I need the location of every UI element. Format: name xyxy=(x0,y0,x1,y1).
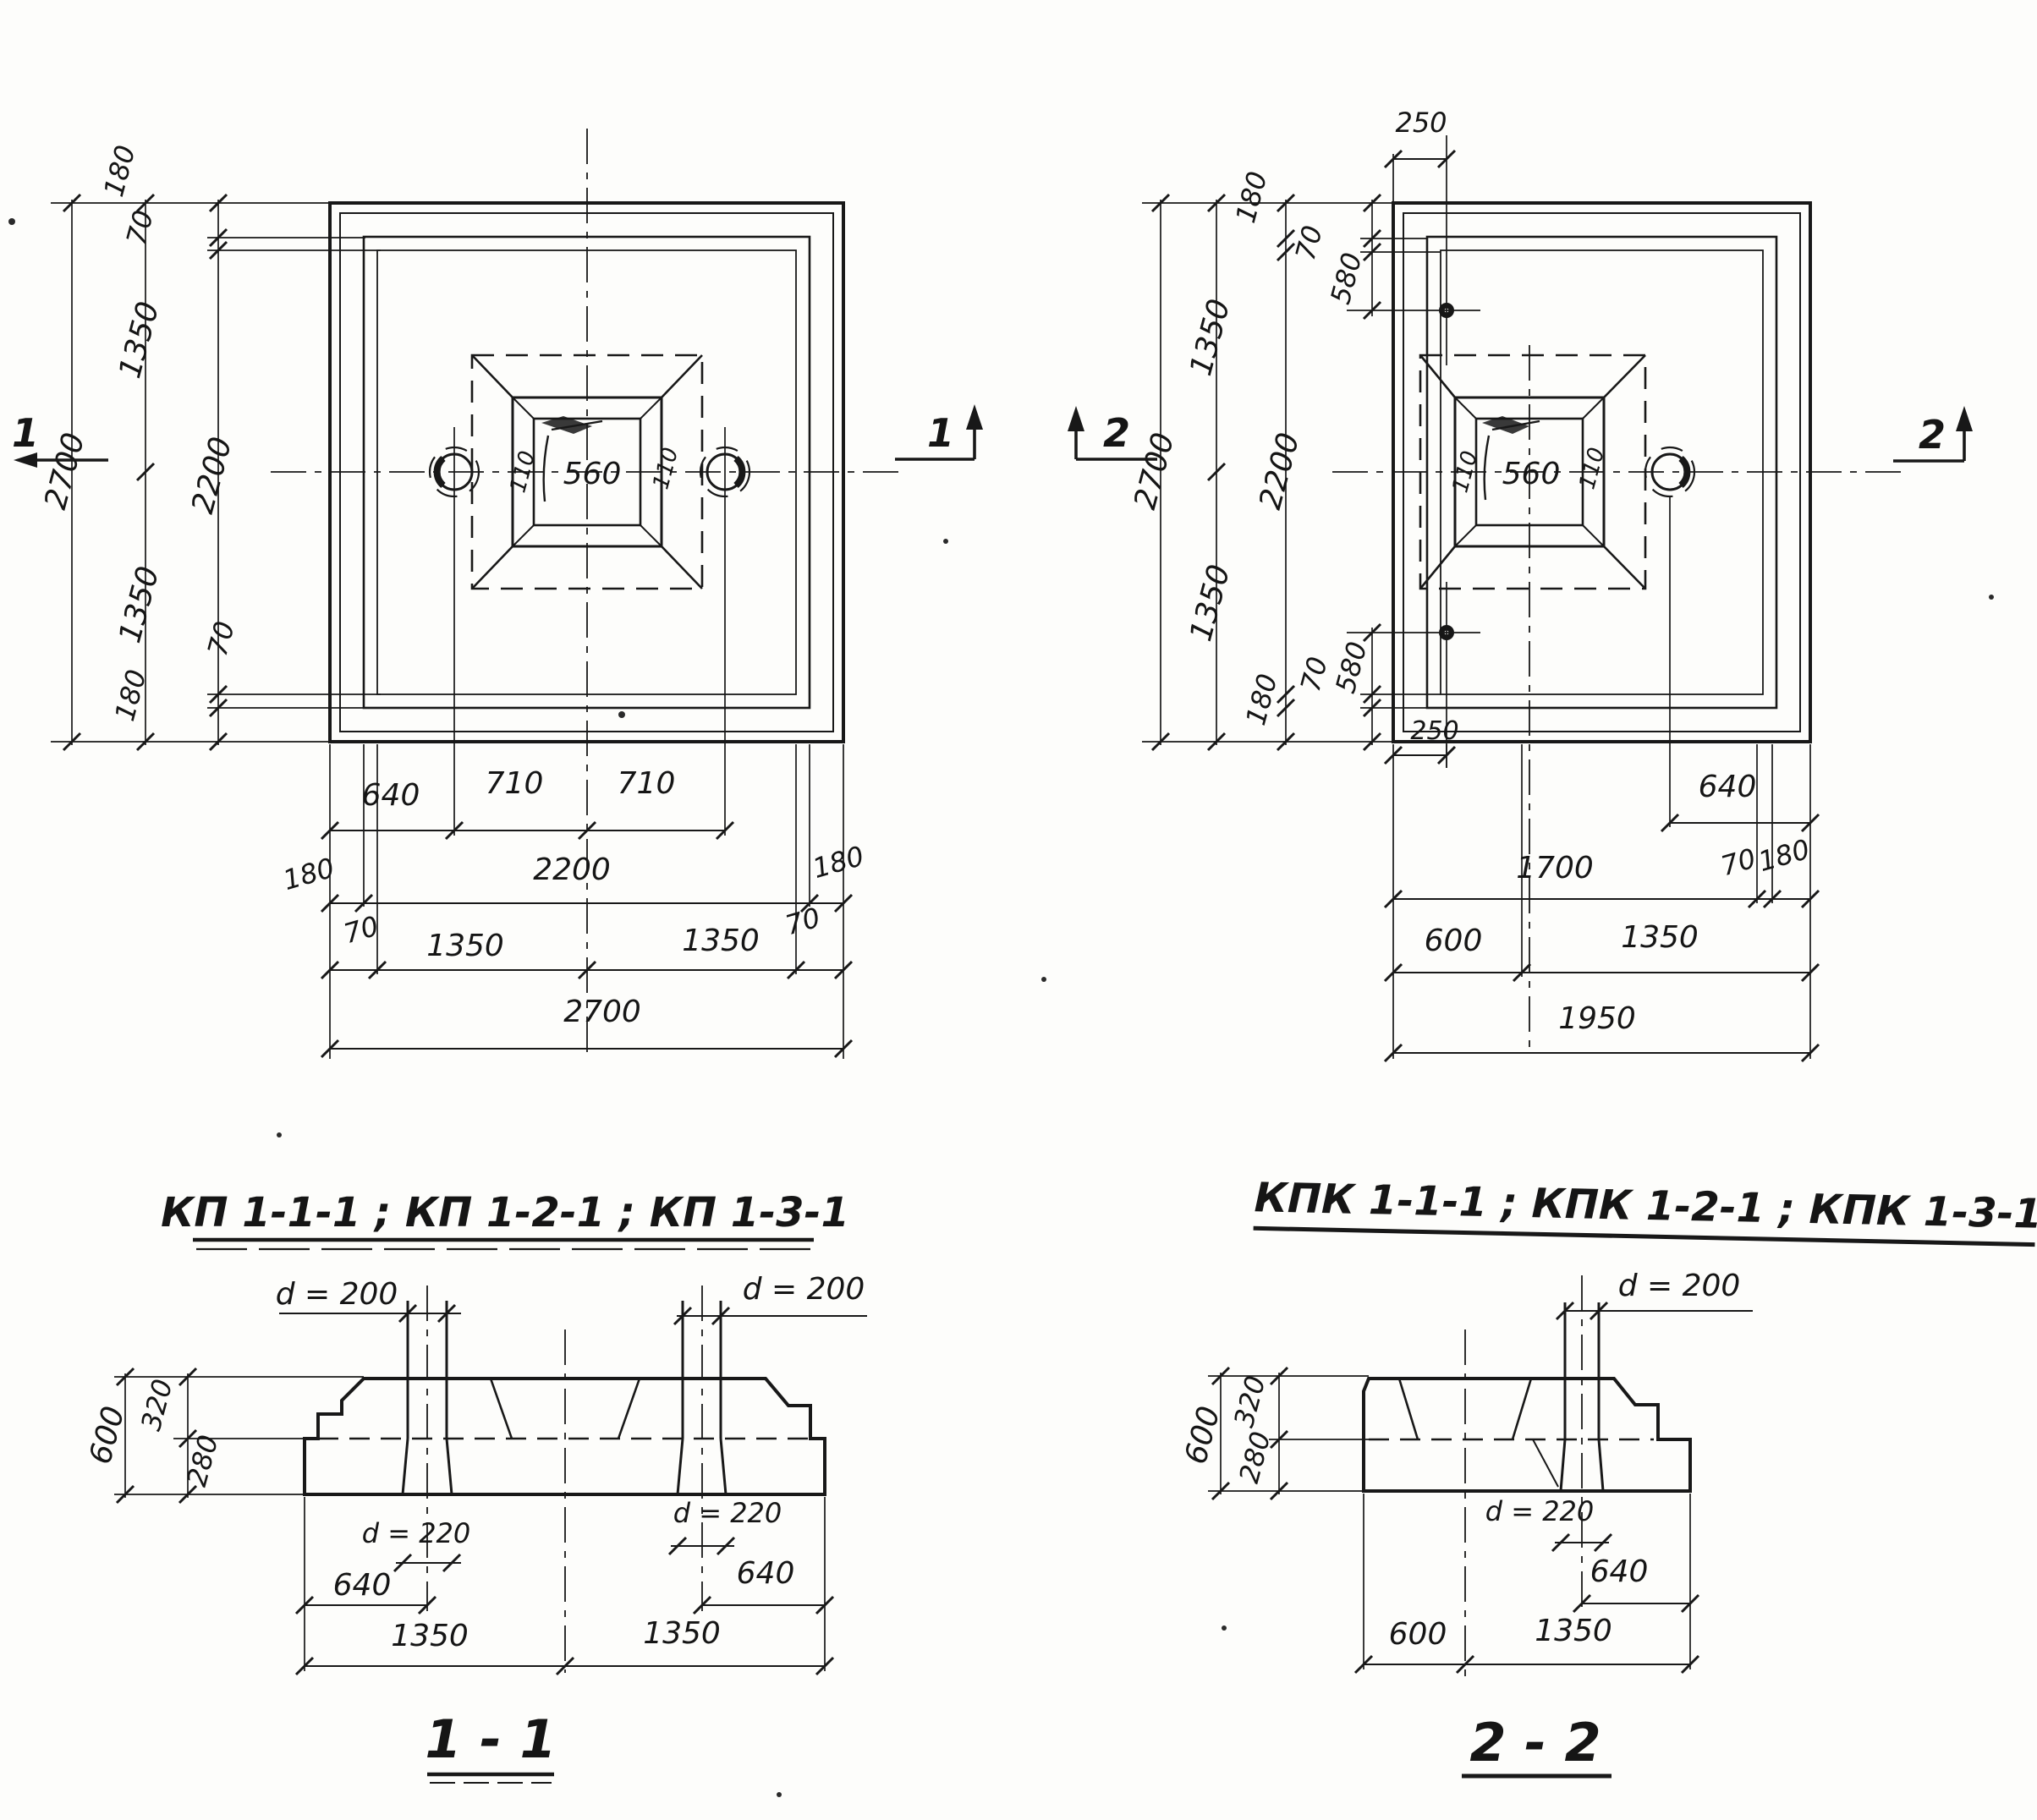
section-1-title: 1 - 1 xyxy=(425,1708,556,1770)
dim-710-left: 710 xyxy=(486,766,544,801)
foundation-drawing: 2700 1350 1350 2200 180 70 70 180 110 56… xyxy=(0,0,2037,1820)
dim-70-top: 70 xyxy=(1289,222,1329,264)
dim-250-top: 250 xyxy=(1395,107,1447,139)
dim-70-bottom: 70 xyxy=(1294,654,1334,695)
dim-70-right: 70 xyxy=(782,902,824,942)
section-1-dimension-lines xyxy=(279,1313,867,1666)
pocket-110-left: 110 xyxy=(505,448,541,496)
svg-text:1: 1 xyxy=(927,410,954,456)
plan-right-ticks xyxy=(1152,151,1819,1061)
pocket-560: 560 xyxy=(1502,457,1561,491)
section-2-dimension-lines xyxy=(1364,1311,1753,1664)
dim-edge-top: 180 xyxy=(97,142,142,200)
svg-text:1: 1 xyxy=(12,410,39,456)
section-2-extensions xyxy=(1208,1373,1690,1669)
dim-640-right: 640 xyxy=(737,1556,795,1591)
plan-right-extensions xyxy=(1142,135,1810,1059)
svg-text:2: 2 xyxy=(1103,410,1130,456)
section-2-2-view: d = 200 600 320 280 d = 220 640 600 1350… xyxy=(1178,1269,1753,1776)
dim-600: 600 xyxy=(1425,924,1483,958)
dim-1350-left: 1350 xyxy=(426,929,504,963)
dim-1350-left: 1350 xyxy=(391,1619,469,1653)
blueprint-canvas: 2700 1350 1350 2200 180 70 70 180 110 56… xyxy=(0,0,2037,1820)
pocket-560: 560 xyxy=(563,457,622,491)
svg-text:2: 2 xyxy=(1919,412,1946,458)
dim-250-bottom: 250 xyxy=(1410,716,1458,746)
dim-total-height: 2700 xyxy=(38,429,91,513)
plan-left-view: 2700 1350 1350 2200 180 70 70 180 110 56… xyxy=(12,129,983,1059)
section-marker-2-right: 2 xyxy=(1893,406,1973,461)
hole-chamfer xyxy=(1533,1439,1558,1487)
label-d200-left: d = 200 xyxy=(276,1277,398,1312)
dim-half-bottom: 1350 xyxy=(1183,561,1237,644)
dim-640: 640 xyxy=(1699,770,1757,804)
dim-180: 180 xyxy=(1754,833,1813,878)
dim-1350-right: 1350 xyxy=(682,924,760,958)
dim-1350: 1350 xyxy=(1621,920,1699,955)
dim-1350-right: 1350 xyxy=(643,1616,721,1651)
pocket-110-right: 110 xyxy=(648,445,684,492)
dim-inner: 2200 xyxy=(185,433,239,517)
plan-right-dimension-lines xyxy=(1393,159,1810,1053)
dim-580-top: 580 xyxy=(1324,249,1369,308)
label-d220: d = 220 xyxy=(1485,1495,1595,1527)
dim-320: 320 xyxy=(135,1376,179,1434)
dim-320: 320 xyxy=(1227,1373,1272,1431)
dim-1350: 1350 xyxy=(1535,1614,1612,1648)
title-plan-right-group: КПК 1-1-1 ; КПК 1-2-1 ; КПК 1-3-1 xyxy=(1254,1174,2037,1244)
dim-180-bottom: 180 xyxy=(1239,671,1284,729)
dim-2200: 2200 xyxy=(533,852,611,887)
label-d220-left: d = 220 xyxy=(362,1517,471,1549)
title-plan-right: КПК 1-1-1 ; КПК 1-2-1 ; КПК 1-3-1 xyxy=(1254,1174,2037,1237)
dim-280: 280 xyxy=(1233,1428,1277,1487)
dim-step-top: 70 xyxy=(120,207,160,249)
dim-180-right: 180 xyxy=(809,840,867,885)
dim-2700: 2700 xyxy=(563,995,641,1029)
dim-half-bottom: 1350 xyxy=(113,562,166,646)
plan-right-view: 250 180 70 580 2700 1350 1350 2200 70 58… xyxy=(1068,107,1973,1061)
dim-640-left: 640 xyxy=(333,1568,392,1603)
dim-70: 70 xyxy=(1717,842,1760,883)
pocket-110-left: 110 xyxy=(1447,448,1483,496)
dim-600: 600 xyxy=(1178,1403,1227,1468)
dim-70-left: 70 xyxy=(340,910,382,951)
section-2-ticks xyxy=(1212,1302,1699,1673)
dim-600-bottom: 600 xyxy=(1389,1617,1447,1652)
dim-710-right: 710 xyxy=(618,766,676,801)
dim-half-top: 1350 xyxy=(1183,295,1237,379)
dim-600: 600 xyxy=(83,1403,131,1468)
label-d200: d = 200 xyxy=(1618,1269,1741,1303)
dim-640: 640 xyxy=(362,778,420,813)
label-d200-right: d = 200 xyxy=(743,1272,865,1307)
title-plan-left: КП 1-1-1 ; КП 1-2-1 ; КП 1-3-1 xyxy=(161,1189,849,1236)
dim-inner: 2200 xyxy=(1253,429,1306,513)
dim-step-bottom: 70 xyxy=(201,618,241,660)
dim-1700: 1700 xyxy=(1516,851,1594,885)
dim-180-top: 180 xyxy=(1229,168,1274,227)
scan-artifacts xyxy=(8,218,1994,1797)
dim-640: 640 xyxy=(1590,1554,1649,1589)
dim-half-top: 1350 xyxy=(113,298,166,381)
dim-580-bottom: 580 xyxy=(1329,639,1374,697)
section-2-title: 2 - 2 xyxy=(1469,1712,1600,1773)
label-d220-right: d = 220 xyxy=(673,1497,782,1529)
section-1-1-view: d = 200 d = 200 600 320 280 d = 220 d = … xyxy=(83,1272,867,1783)
dim-1950: 1950 xyxy=(1558,1001,1636,1036)
section-marker-1-right: 1 xyxy=(895,404,983,459)
dim-total-height: 2700 xyxy=(1128,429,1181,513)
